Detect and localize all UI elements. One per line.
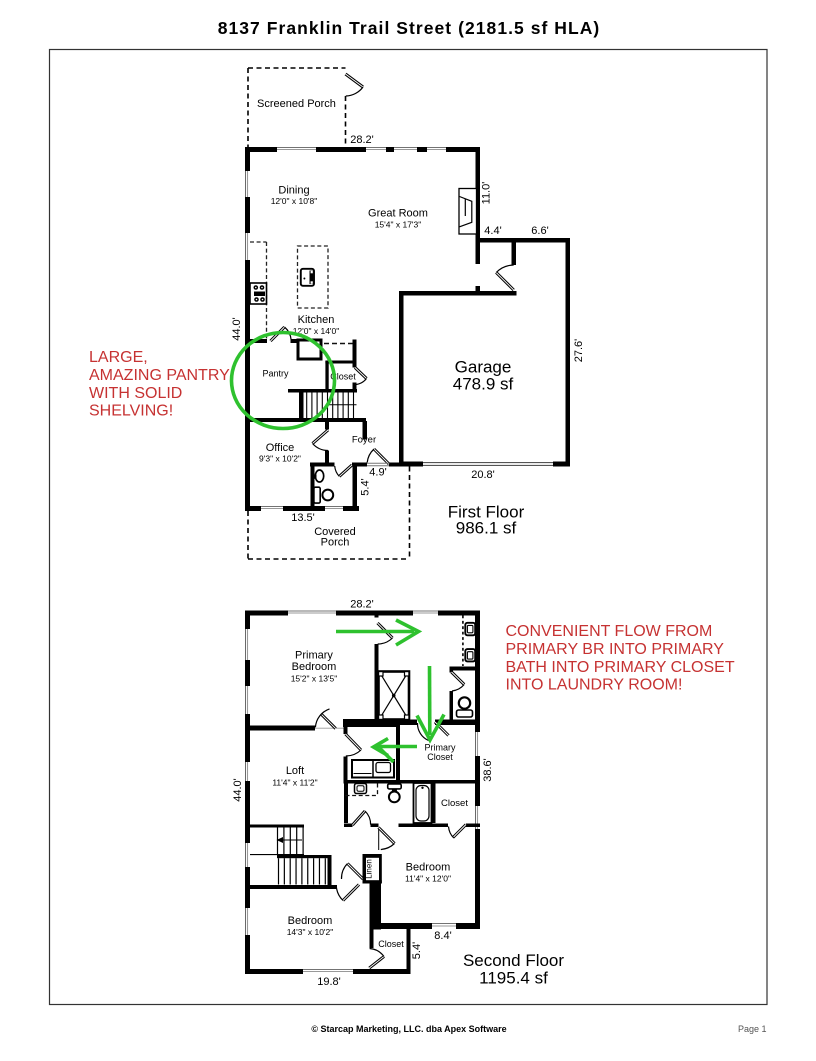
svg-text:Great Room: Great Room <box>368 208 428 220</box>
svg-text:PRIMARY BR INTO PRIMARY: PRIMARY BR INTO PRIMARY <box>506 641 725 658</box>
svg-text:6.6': 6.6' <box>531 225 548 237</box>
svg-text:28.2': 28.2' <box>350 134 374 146</box>
svg-text:CONVENIENT FLOW FROM: CONVENIENT FLOW FROM <box>506 623 713 640</box>
svg-text:Dining: Dining <box>278 185 309 197</box>
svg-text:© Starcap Marketing, LLC. dba: © Starcap Marketing, LLC. dba Apex Softw… <box>311 1024 506 1034</box>
svg-text:27.6': 27.6' <box>573 339 585 363</box>
svg-text:4.4': 4.4' <box>484 225 501 237</box>
svg-text:Foyer: Foyer <box>352 435 376 446</box>
svg-text:Bedroom: Bedroom <box>292 661 337 673</box>
svg-text:SHELVING!: SHELVING! <box>89 403 173 420</box>
svg-text:15'4" x 17'3": 15'4" x 17'3" <box>375 220 422 230</box>
svg-text:20.8': 20.8' <box>471 469 495 481</box>
svg-text:Second Floor: Second Floor <box>463 951 564 970</box>
svg-text:Kitchen: Kitchen <box>298 314 335 326</box>
svg-text:BATH INTO PRIMARY CLOSET: BATH INTO PRIMARY CLOSET <box>506 659 735 676</box>
svg-text:44.0': 44.0' <box>232 778 244 802</box>
svg-text:Bedroom: Bedroom <box>288 915 333 927</box>
svg-text:Closet: Closet <box>427 752 453 762</box>
svg-text:986.1 sf: 986.1 sf <box>456 519 517 538</box>
svg-text:11'4" x 12'0": 11'4" x 12'0" <box>405 874 451 884</box>
svg-text:11.0': 11.0' <box>481 182 493 205</box>
svg-text:Bedroom: Bedroom <box>406 862 451 874</box>
svg-text:INTO LAUNDRY ROOM!: INTO LAUNDRY ROOM! <box>506 677 683 694</box>
svg-text:Loft: Loft <box>286 765 304 777</box>
svg-text:Porch: Porch <box>321 537 350 549</box>
svg-text:19.8': 19.8' <box>317 976 341 988</box>
svg-text:5.4': 5.4' <box>360 478 372 495</box>
svg-text:28.2': 28.2' <box>350 599 374 611</box>
svg-text:Screened Porch: Screened Porch <box>257 98 336 110</box>
svg-text:5.4': 5.4' <box>411 942 423 959</box>
svg-text:Pantry: Pantry <box>262 369 289 379</box>
svg-text:15'2" x 13'5": 15'2" x 13'5" <box>291 674 338 684</box>
svg-text:12'0" x 10'8": 12'0" x 10'8" <box>271 196 318 206</box>
svg-text:Office: Office <box>266 442 295 454</box>
svg-text:9'3" x 10'2": 9'3" x 10'2" <box>259 454 301 464</box>
svg-text:13.5': 13.5' <box>291 512 315 524</box>
svg-text:14'3" x 10'2": 14'3" x 10'2" <box>287 927 334 937</box>
svg-text:44.0': 44.0' <box>231 317 243 341</box>
svg-text:AMAZING PANTRY: AMAZING PANTRY <box>89 367 230 384</box>
svg-text:478.9 sf: 478.9 sf <box>453 375 514 394</box>
svg-text:8.4': 8.4' <box>434 930 451 942</box>
svg-text:1195.4 sf: 1195.4 sf <box>479 969 548 988</box>
svg-text:38.6': 38.6' <box>482 758 494 782</box>
svg-text:Primary: Primary <box>295 650 333 662</box>
svg-text:11'4" x 11'2": 11'4" x 11'2" <box>272 778 317 788</box>
svg-text:Closet: Closet <box>378 939 404 949</box>
svg-text:Linen: Linen <box>365 859 374 879</box>
svg-text:Primary: Primary <box>425 743 456 753</box>
svg-text:8137 Franklin Trail Street (21: 8137 Franklin Trail Street (2181.5 sf HL… <box>218 18 601 38</box>
svg-text:LARGE,: LARGE, <box>89 349 148 366</box>
svg-text:4.9': 4.9' <box>369 467 386 479</box>
svg-text:WITH SOLID: WITH SOLID <box>89 385 182 402</box>
svg-text:Page 1: Page 1 <box>738 1024 767 1034</box>
svg-text:Closet: Closet <box>441 798 468 809</box>
